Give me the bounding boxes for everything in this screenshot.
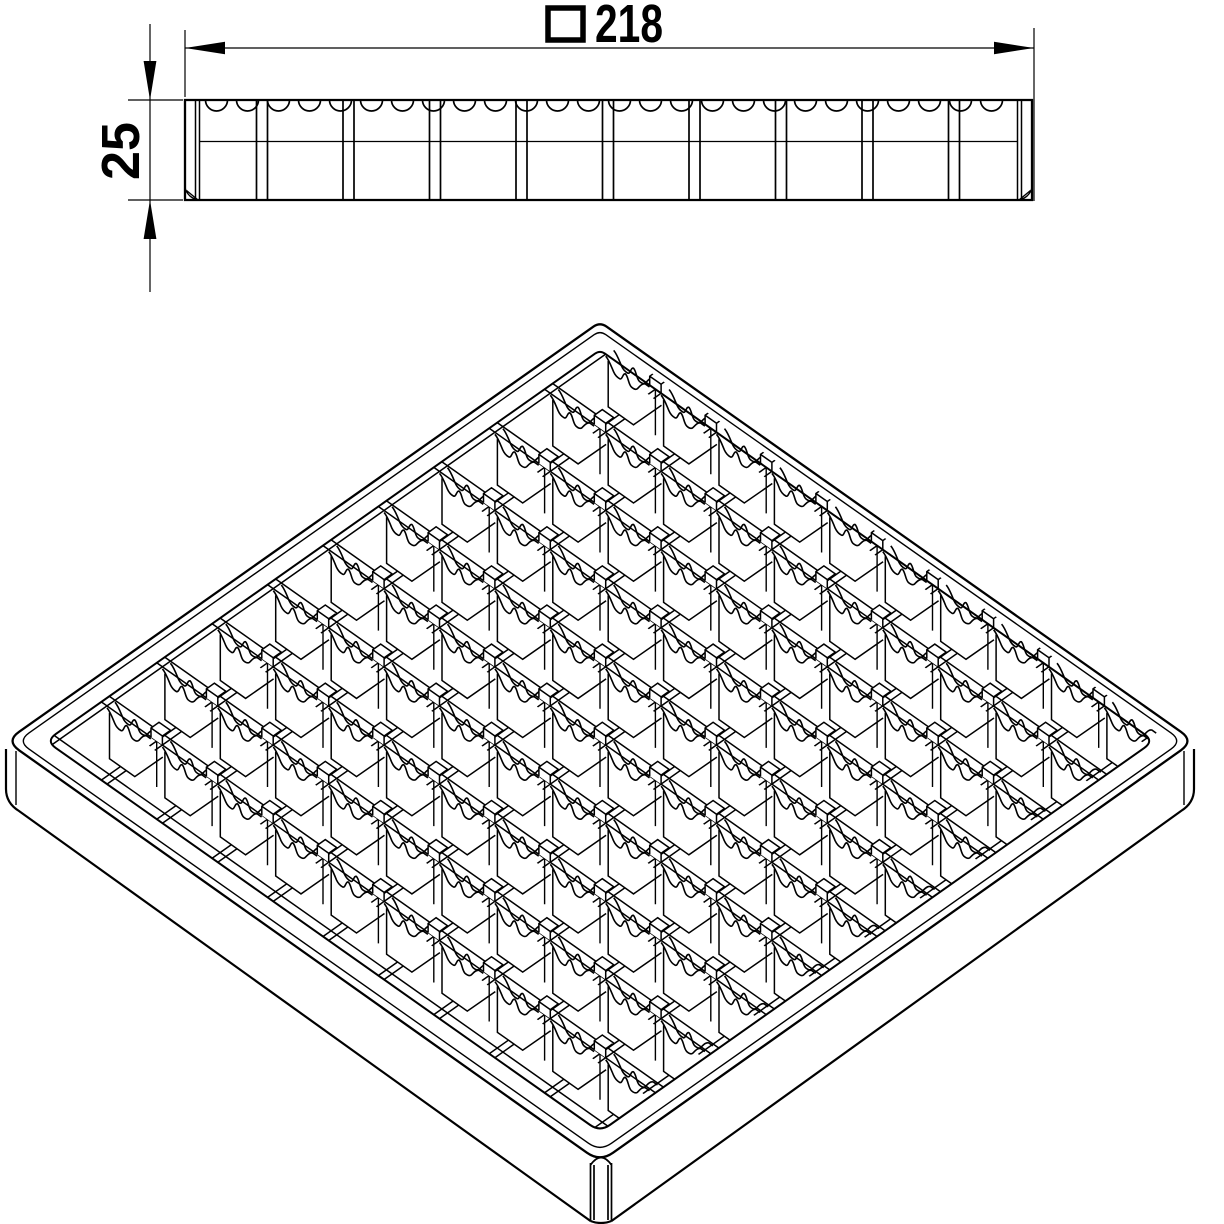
- width-arrow-right-icon: [994, 42, 1034, 54]
- height-arrow-bottom-icon: [144, 200, 157, 239]
- height-arrow-top-icon: [144, 61, 157, 100]
- dimension-annotations: 218 25: [91, 0, 1034, 292]
- technical-drawing: 218 25: [0, 0, 1224, 1224]
- square-symbol: [548, 8, 583, 40]
- side-frame-lines: [196, 100, 1022, 200]
- height-dimension-text: 25: [91, 122, 151, 180]
- side-serrations: [206, 100, 1003, 111]
- side-bars: [257, 100, 960, 200]
- isometric-view: [6, 324, 1194, 1223]
- corner-post: [591, 1158, 612, 1222]
- width-dimension-text: 218: [595, 0, 663, 54]
- drawing-canvas: 218 25: [0, 0, 1224, 1224]
- side-elevation-view: [185, 100, 1032, 200]
- height-dimension: 25: [91, 24, 183, 292]
- side-outline: [185, 100, 1032, 200]
- side-chamfers: [185, 188, 1032, 201]
- width-arrow-left-icon: [185, 42, 225, 54]
- grating-grid: [52, 350, 1161, 1128]
